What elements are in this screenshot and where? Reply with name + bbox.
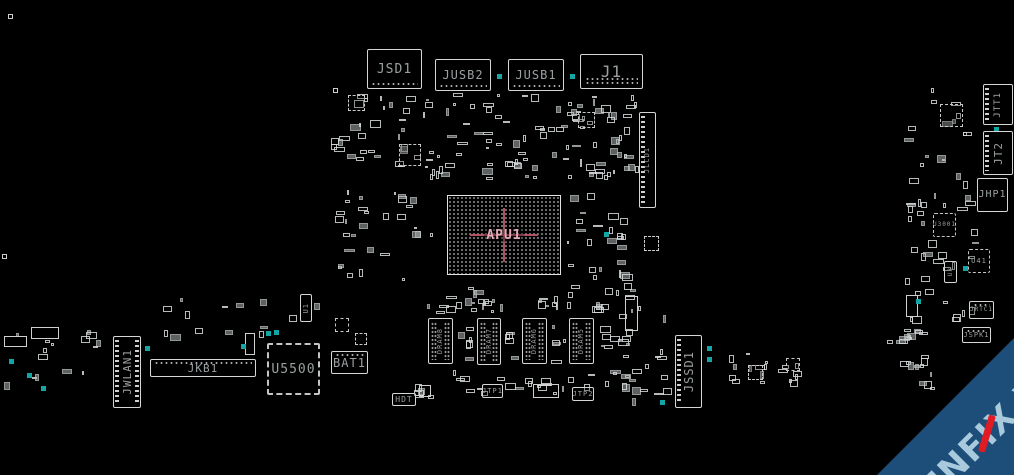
passive-component xyxy=(663,315,666,323)
passive-component xyxy=(566,145,569,150)
passive-component xyxy=(474,290,484,295)
passive-component xyxy=(195,328,203,334)
passive-component xyxy=(925,155,929,158)
component-label: HDT xyxy=(395,396,412,404)
passive-component xyxy=(621,234,626,240)
passive-component xyxy=(456,153,462,156)
passive-component xyxy=(921,358,928,366)
passive-component xyxy=(497,377,505,381)
passive-component xyxy=(427,304,430,309)
passive-component xyxy=(535,126,544,130)
component-label: JSPK1 xyxy=(963,332,989,339)
passive-component xyxy=(620,340,623,342)
unlabeled-component[interactable] xyxy=(419,385,431,397)
passive-component xyxy=(957,207,968,211)
passive-component xyxy=(360,150,367,154)
passive-component xyxy=(483,132,493,135)
passive-component xyxy=(453,370,456,376)
component-label: DRAM7 xyxy=(486,328,493,354)
component-dram7[interactable]: DRAM7 xyxy=(477,318,501,365)
component-label: JT2 xyxy=(993,142,1004,165)
passive-component xyxy=(163,306,172,312)
component-hdt[interactable]: HDT xyxy=(392,393,416,406)
passive-component xyxy=(632,369,642,374)
passive-component xyxy=(899,339,908,344)
passive-component xyxy=(548,127,555,132)
passive-component xyxy=(729,355,734,363)
passive-component xyxy=(887,340,893,344)
passive-component xyxy=(463,123,470,125)
passive-component xyxy=(624,283,632,290)
component-jusb1[interactable]: JUSB1 xyxy=(508,59,564,91)
passive-component xyxy=(359,223,368,229)
passive-component xyxy=(607,172,611,177)
passive-component xyxy=(347,154,356,159)
passive-component xyxy=(904,329,911,332)
passive-component xyxy=(576,229,586,232)
passive-component xyxy=(640,389,648,392)
passive-component xyxy=(425,166,428,168)
passive-component xyxy=(471,308,477,312)
boardview-canvas[interactable]: JSD1JUSB2JUSB1J1JLCD1APU1JWLAN1JKB1U5500… xyxy=(0,0,1014,475)
passive-component xyxy=(485,301,492,306)
passive-component xyxy=(344,249,355,252)
passive-component xyxy=(338,264,344,268)
passive-component xyxy=(571,285,580,289)
component-u41[interactable]: U41 xyxy=(968,249,990,273)
passive-component xyxy=(445,163,455,168)
passive-component xyxy=(931,88,934,93)
passive-component xyxy=(439,305,449,308)
passive-component xyxy=(911,247,918,253)
passive-component xyxy=(62,369,72,374)
passive-component xyxy=(632,387,641,395)
passive-component xyxy=(474,132,484,135)
unlabeled-component[interactable] xyxy=(533,384,559,398)
passive-component xyxy=(943,301,948,304)
passive-component xyxy=(402,278,405,281)
passive-component xyxy=(601,105,611,113)
component-j1[interactable]: J1 xyxy=(580,54,643,89)
ic-chip[interactable] xyxy=(786,358,800,371)
passive-component xyxy=(587,239,592,246)
passive-component xyxy=(645,364,649,369)
passive-component xyxy=(472,302,475,304)
component-u5500[interactable]: U5500 xyxy=(267,343,320,395)
ic-chip[interactable] xyxy=(399,144,421,166)
component-jssd1[interactable]: JSSD1 xyxy=(675,335,702,408)
passive-component xyxy=(364,211,369,214)
passive-component xyxy=(465,357,474,361)
test-point xyxy=(9,359,14,364)
passive-component xyxy=(351,234,356,237)
passive-component xyxy=(336,211,345,215)
test-point xyxy=(707,346,712,351)
passive-component xyxy=(532,165,538,171)
passive-component xyxy=(380,253,390,256)
passive-component xyxy=(432,169,435,176)
test-point xyxy=(145,346,150,351)
passive-component xyxy=(561,125,568,128)
passive-component xyxy=(486,147,489,149)
passive-component xyxy=(552,152,557,158)
passive-component xyxy=(600,326,611,333)
passive-component xyxy=(522,95,528,97)
passive-component xyxy=(335,216,344,223)
test-point xyxy=(916,299,921,304)
passive-component xyxy=(545,305,549,307)
passive-component xyxy=(622,336,631,342)
passive-component xyxy=(515,387,524,390)
passive-component xyxy=(374,155,381,158)
passive-component xyxy=(423,112,425,118)
component-label: JSSD1 xyxy=(683,351,695,392)
component-bat1[interactable]: BAT1 xyxy=(331,351,368,374)
passive-component xyxy=(563,158,569,160)
passive-component xyxy=(453,93,463,97)
passive-component xyxy=(909,178,919,184)
passive-component xyxy=(465,298,472,306)
passive-component xyxy=(518,152,526,155)
passive-component xyxy=(580,159,582,167)
passive-component xyxy=(917,211,924,216)
component-label: JKB1 xyxy=(188,363,219,374)
component-label: DRAM5 xyxy=(578,328,585,354)
passive-component xyxy=(746,353,750,355)
passive-component xyxy=(533,176,537,179)
passive-component xyxy=(624,127,630,135)
passive-component xyxy=(568,264,574,267)
passive-component xyxy=(414,227,417,229)
passive-component xyxy=(469,337,472,343)
passive-component xyxy=(617,245,627,250)
passive-component xyxy=(620,218,628,225)
ic-chip[interactable] xyxy=(578,112,595,128)
passive-component xyxy=(497,94,500,97)
passive-component xyxy=(962,310,965,317)
passive-component xyxy=(436,171,439,179)
passive-component xyxy=(904,138,914,142)
passive-component xyxy=(358,133,366,139)
passive-component xyxy=(236,303,244,308)
passive-component xyxy=(345,219,347,224)
passive-component xyxy=(568,102,572,106)
passive-component xyxy=(915,364,919,370)
component-label: JHP1 xyxy=(978,190,1006,200)
passive-component xyxy=(930,372,932,377)
passive-component xyxy=(460,376,470,382)
component-label: BAT1 xyxy=(333,357,366,369)
passive-component xyxy=(4,382,10,390)
passive-component xyxy=(477,388,482,390)
passive-component xyxy=(437,155,440,158)
passive-component xyxy=(567,241,569,244)
passive-component xyxy=(593,99,595,106)
passive-component xyxy=(511,356,519,360)
passive-component xyxy=(580,212,586,214)
passive-component xyxy=(943,203,946,208)
passive-component xyxy=(623,114,632,118)
passive-component xyxy=(568,377,574,383)
passive-component xyxy=(225,330,233,335)
passive-component xyxy=(635,166,639,173)
passive-component xyxy=(921,202,927,208)
passive-component xyxy=(933,259,944,264)
passive-component xyxy=(359,269,363,277)
passive-component xyxy=(923,252,933,257)
passive-component xyxy=(623,355,629,358)
passive-component xyxy=(260,299,267,306)
passive-component xyxy=(45,340,50,343)
component-jtt1[interactable]: JTT1 xyxy=(983,84,1013,125)
passive-component xyxy=(568,175,572,179)
component-jspk1[interactable]: JSPK1 xyxy=(962,327,991,343)
passive-component xyxy=(931,100,937,104)
passive-component xyxy=(551,360,562,364)
component-jhp1[interactable]: JHP1 xyxy=(977,178,1008,212)
component-jtp1[interactable]: JTP1 xyxy=(482,384,503,398)
passive-component xyxy=(380,96,382,101)
component-label: DRAM8 xyxy=(437,328,444,354)
component-label: JSD1 xyxy=(377,63,412,76)
passive-component xyxy=(43,348,47,353)
passive-component xyxy=(439,166,443,174)
passive-component xyxy=(619,270,621,278)
passive-component xyxy=(403,108,410,114)
passive-component xyxy=(389,102,393,108)
test-point xyxy=(241,344,246,349)
passive-component xyxy=(628,164,635,171)
component-label: JLCD1 xyxy=(644,147,651,173)
passive-component xyxy=(604,345,613,349)
ic-chip[interactable] xyxy=(644,236,659,251)
component-dram6[interactable]: DRAM6 xyxy=(522,318,547,364)
passive-component xyxy=(399,119,406,121)
component-u3001[interactable]: U3001 xyxy=(933,213,956,237)
passive-component xyxy=(592,306,602,313)
ic-chip[interactable] xyxy=(355,333,367,345)
passive-component xyxy=(613,372,617,375)
component-dram8[interactable]: DRAM8 xyxy=(428,318,453,364)
passive-component xyxy=(51,343,54,346)
passive-component xyxy=(180,298,183,302)
passive-component xyxy=(733,364,737,370)
passive-component xyxy=(963,132,972,136)
passive-component xyxy=(525,175,529,178)
passive-component xyxy=(289,315,297,322)
passive-component xyxy=(605,381,609,387)
passive-component xyxy=(905,278,910,285)
passive-component xyxy=(908,362,914,370)
component-dram5[interactable]: DRAM5 xyxy=(569,318,594,364)
passive-component xyxy=(523,158,528,161)
ic-chip[interactable] xyxy=(335,318,349,332)
passive-component xyxy=(556,106,561,113)
passive-component xyxy=(915,330,923,334)
passive-component xyxy=(383,106,385,110)
passive-component xyxy=(908,206,913,213)
component-label: JTP2 xyxy=(573,391,594,398)
passive-component xyxy=(531,94,539,102)
passive-component xyxy=(608,213,619,220)
component-jt2[interactable]: JT2 xyxy=(983,131,1013,175)
passive-component xyxy=(660,349,663,355)
passive-component xyxy=(608,113,610,117)
passive-component xyxy=(928,240,937,248)
unlabeled-component[interactable] xyxy=(4,336,27,347)
test-point xyxy=(604,232,609,237)
passive-component xyxy=(359,123,361,127)
passive-component xyxy=(793,371,802,377)
ic-chip[interactable] xyxy=(940,104,963,127)
passive-component xyxy=(35,374,39,381)
component-jsd1[interactable]: JSD1 xyxy=(367,49,422,89)
component-jkb1[interactable]: JKB1 xyxy=(150,359,256,377)
passive-component xyxy=(259,331,264,338)
passive-component xyxy=(599,267,602,272)
passive-component xyxy=(609,227,613,234)
passive-component xyxy=(500,304,503,312)
passive-component xyxy=(486,139,492,143)
component-apu1[interactable]: APU1 xyxy=(447,195,561,275)
passive-component xyxy=(164,330,168,337)
passive-component xyxy=(921,276,930,282)
passive-component xyxy=(82,371,84,375)
passive-component xyxy=(624,154,627,158)
passive-component xyxy=(81,336,90,343)
test-point xyxy=(660,400,665,405)
component-label: U5500 xyxy=(271,363,315,376)
passive-component xyxy=(495,115,502,119)
passive-component xyxy=(760,381,765,384)
component-label: JUSB2 xyxy=(442,69,483,81)
passive-component xyxy=(764,364,767,370)
passive-component xyxy=(571,109,577,116)
passive-component xyxy=(899,336,910,340)
passive-component xyxy=(398,134,400,140)
component-label: JTT1 xyxy=(994,92,1003,118)
passive-component xyxy=(425,102,433,108)
ic-chip[interactable] xyxy=(348,95,365,111)
passive-component xyxy=(539,298,548,300)
watermark-red-slash xyxy=(978,414,996,452)
passive-component xyxy=(394,192,396,195)
passive-component xyxy=(406,205,413,208)
passive-component xyxy=(410,197,417,204)
passive-component xyxy=(965,201,976,206)
passive-component xyxy=(446,296,457,299)
component-label: DRAM6 xyxy=(531,328,538,354)
passive-component xyxy=(453,103,456,106)
component-jrtc1[interactable]: JRTC1 xyxy=(969,301,994,319)
passive-component xyxy=(963,181,968,189)
test-point xyxy=(570,74,575,79)
passive-component xyxy=(622,383,627,390)
component-jwlan1[interactable]: JWLAN1 xyxy=(113,336,141,408)
passive-component xyxy=(430,233,433,237)
unlabeled-component[interactable] xyxy=(625,296,638,331)
passive-component xyxy=(331,138,339,145)
passive-component xyxy=(626,343,630,346)
test-point xyxy=(707,357,712,362)
passive-component xyxy=(661,375,668,380)
component-label: U41 xyxy=(971,258,987,265)
passive-component xyxy=(93,346,98,348)
passive-component xyxy=(426,99,429,101)
passive-component xyxy=(347,273,353,278)
passive-component xyxy=(920,163,924,167)
passive-component xyxy=(567,302,571,309)
unlabeled-component[interactable] xyxy=(31,327,59,339)
passive-component xyxy=(359,196,363,200)
passive-component xyxy=(577,104,583,108)
passive-component xyxy=(456,302,462,309)
passive-component xyxy=(345,200,350,203)
passive-component xyxy=(971,229,978,236)
passive-component xyxy=(343,233,350,237)
component-jlcd1[interactable]: JLCD1 xyxy=(639,112,656,208)
stray-component xyxy=(333,88,338,93)
passive-component xyxy=(457,142,468,145)
passive-component xyxy=(588,374,595,376)
passive-component xyxy=(383,213,389,220)
passive-component xyxy=(398,194,406,199)
passive-component xyxy=(617,260,626,265)
passive-component xyxy=(638,306,641,311)
passive-component xyxy=(486,107,492,113)
passive-component xyxy=(576,219,583,224)
passive-component xyxy=(426,159,433,161)
ic-chip[interactable] xyxy=(748,365,763,380)
component-u3[interactable]: U3 xyxy=(944,261,957,283)
passive-component xyxy=(593,275,597,280)
component-label: JWLAN1 xyxy=(122,349,133,395)
passive-component xyxy=(956,173,961,180)
passive-component xyxy=(492,299,495,303)
passive-component xyxy=(486,177,493,180)
passive-component xyxy=(314,303,320,310)
component-u1[interactable]: U1 xyxy=(300,294,312,322)
component-label: U3 xyxy=(948,267,954,276)
passive-component xyxy=(466,327,474,331)
passive-component xyxy=(397,214,406,220)
component-label: J1 xyxy=(601,64,622,80)
passive-component xyxy=(505,161,513,167)
passive-component xyxy=(908,216,912,222)
passive-component xyxy=(610,336,620,342)
component-label: JUSB1 xyxy=(515,69,556,81)
component-label: U1 xyxy=(303,303,310,313)
passive-component xyxy=(446,108,449,116)
test-point xyxy=(266,331,271,336)
passive-component xyxy=(38,354,48,360)
passive-component xyxy=(732,379,740,384)
passive-component xyxy=(596,162,606,166)
passive-component xyxy=(368,150,375,153)
passive-component xyxy=(790,380,798,387)
passive-component xyxy=(593,225,603,227)
passive-component xyxy=(607,117,615,123)
passive-component xyxy=(657,356,667,360)
stray-component xyxy=(8,14,13,19)
test-point xyxy=(497,74,502,79)
component-jtp2[interactable]: JTP2 xyxy=(572,387,594,401)
component-jusb2[interactable]: JUSB2 xyxy=(435,59,491,91)
passive-component xyxy=(589,172,597,174)
passive-component xyxy=(605,288,613,295)
test-point xyxy=(27,373,32,378)
unlabeled-component[interactable] xyxy=(245,333,255,355)
